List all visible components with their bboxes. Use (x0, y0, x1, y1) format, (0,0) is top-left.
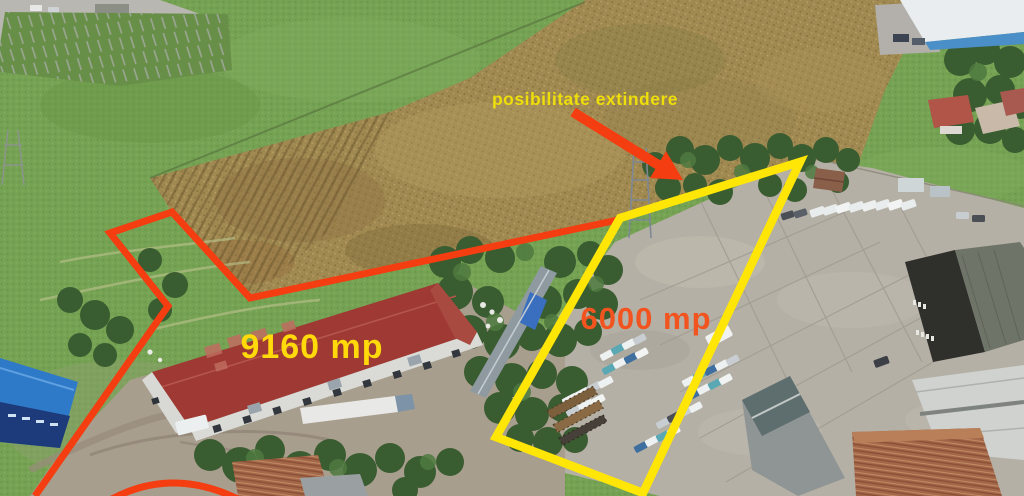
aerial-photo-scene: posibilitate extindere 9160 mp 6000 mp (0, 0, 1024, 496)
small-hut (813, 168, 845, 192)
label-yellow-parcel-area: 6000 mp (580, 301, 711, 336)
label-red-parcel-area: 9160 mp (240, 328, 383, 366)
pole-field (0, 12, 232, 86)
label-expansion: posibilitate extindere (492, 89, 678, 109)
aerial-photo: posibilitate extindere 9160 mp 6000 mp (0, 0, 1024, 496)
rusty-roof-building (852, 428, 1002, 496)
